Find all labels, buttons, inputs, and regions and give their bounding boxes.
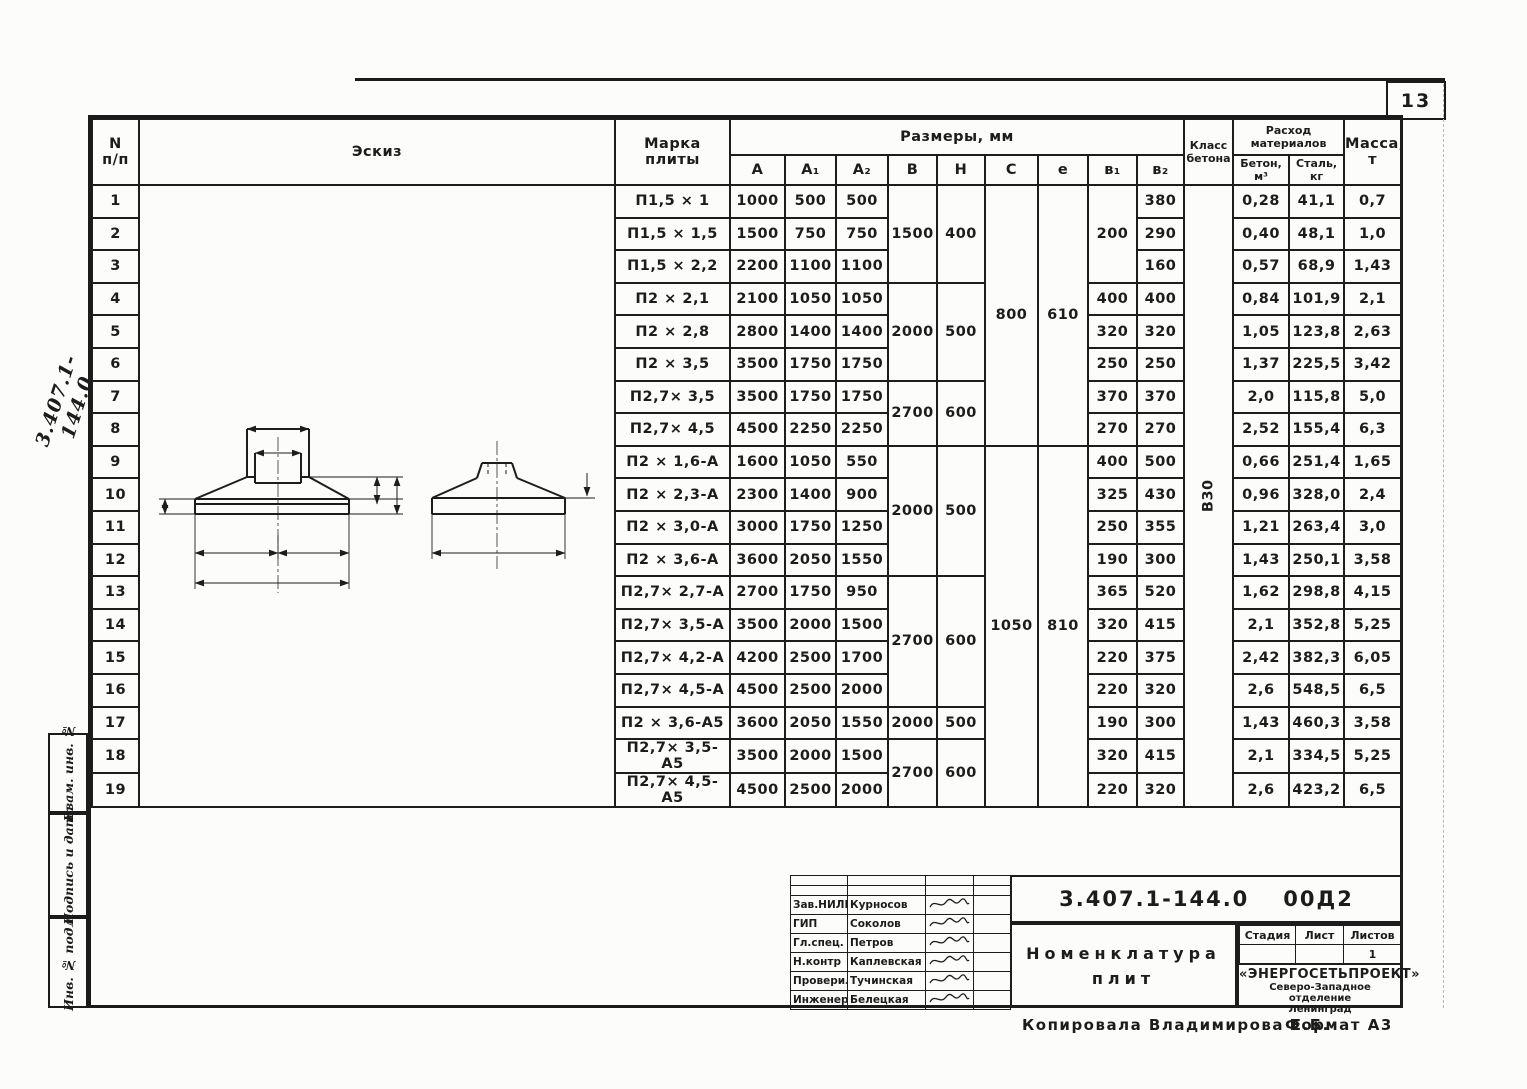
nomenclature-table: N п/п Эскиз Марка плиты Размеры, мм Клас… — [91, 118, 1402, 808]
table-cell: 2250 — [785, 413, 836, 446]
table-cell: 155,4 — [1289, 413, 1344, 446]
table-cell: 2,1 — [1233, 739, 1289, 773]
dimension-lines — [165, 429, 565, 583]
table-cell: 500 — [1137, 446, 1184, 479]
table-cell: 48,1 — [1289, 218, 1344, 251]
listov-header: Листов — [1344, 926, 1402, 945]
table-cell: 600 — [937, 576, 985, 706]
signature-row: ИнженерБелецкая — [791, 991, 1011, 1010]
stage-table: Стадия Лист Листов 1 — [1239, 925, 1402, 964]
signature-table: Зав.НИЛКЭКурносов ГИПСоколов Гл.спец.Пет… — [790, 875, 1011, 1010]
signature-row: ГИПСоколов — [791, 915, 1011, 934]
table-cell: 2500 — [785, 773, 836, 807]
row-number: 5 — [92, 315, 139, 348]
format-note: Формат А3 — [1285, 1016, 1393, 1034]
org-name: «ЭНЕРГОСЕТЬПРОЕКТ» — [1239, 967, 1401, 982]
table-cell: 2000 — [785, 609, 836, 642]
person-role: Проверила — [791, 972, 848, 991]
table-cell: 2,6 — [1233, 773, 1289, 807]
table-cell: 2050 — [785, 707, 836, 740]
col-header-num: N п/п — [92, 119, 139, 185]
list-value — [1296, 945, 1344, 964]
col-header-v2: в₂ — [1137, 155, 1184, 185]
table-cell: 2000 — [836, 773, 888, 807]
table-cell: 1,05 — [1233, 315, 1289, 348]
table-cell: 1000 — [730, 185, 785, 218]
table-cell: 430 — [1137, 478, 1184, 511]
table-cell: 1500 — [730, 218, 785, 251]
table-cell: 423,2 — [1289, 773, 1344, 807]
plate-mark: П2 × 3,6-А5 — [615, 707, 730, 740]
table-cell: 3600 — [730, 544, 785, 577]
table-cell: 6,5 — [1344, 773, 1401, 807]
col-header-steel: Сталь, кг — [1289, 155, 1344, 185]
table-cell: 1500 — [836, 609, 888, 642]
person-signature — [926, 896, 974, 915]
row-number: 11 — [92, 511, 139, 544]
row-number: 12 — [92, 544, 139, 577]
col-header-e: e — [1038, 155, 1088, 185]
col-header-mark: Марка плиты — [615, 119, 730, 185]
table-cell: 1,62 — [1233, 576, 1289, 609]
table-cell: 375 — [1137, 641, 1184, 674]
plate-mark: П2,7× 4,2-А — [615, 641, 730, 674]
person-name: Каплевская — [848, 953, 926, 972]
table-cell: 101,9 — [1289, 283, 1344, 316]
person-name: Белецкая — [848, 991, 926, 1010]
table-cell: 5,0 — [1344, 381, 1401, 414]
table-cell: 4,15 — [1344, 576, 1401, 609]
num-header-line1: N — [93, 136, 138, 152]
doc-title-line2: плит — [1092, 966, 1155, 991]
table-cell: 1400 — [785, 315, 836, 348]
table-cell: 1,0 — [1344, 218, 1401, 251]
table-cell: 1050 — [785, 283, 836, 316]
plate-mark: П2 × 2,1 — [615, 283, 730, 316]
signature-icon — [928, 934, 970, 949]
table-cell: 382,3 — [1289, 641, 1344, 674]
table-cell: 270 — [1137, 413, 1184, 446]
col-header-v1: в₁ — [1088, 155, 1137, 185]
row-number: 9 — [92, 446, 139, 479]
row-number: 16 — [92, 674, 139, 707]
table-cell: 4200 — [730, 641, 785, 674]
doc-suffix: 00Д2 — [1283, 887, 1354, 911]
plate-mark: П2,7× 4,5-А — [615, 674, 730, 707]
table-cell: 520 — [1137, 576, 1184, 609]
row-number: 8 — [92, 413, 139, 446]
table-cell: 2300 — [730, 478, 785, 511]
table-cell: 1550 — [836, 707, 888, 740]
table-cell: 320 — [1137, 315, 1184, 348]
person-role: ГИП — [791, 915, 848, 934]
plate-mark: П2 × 3,5 — [615, 348, 730, 381]
person-name: Соколов — [848, 915, 926, 934]
table-cell: 1,65 — [1344, 446, 1401, 479]
table-cell: 1700 — [836, 641, 888, 674]
table-cell: 2,1 — [1344, 283, 1401, 316]
row-number: 17 — [92, 707, 139, 740]
table-cell: 1750 — [836, 348, 888, 381]
table-cell: 610 — [1038, 185, 1088, 446]
table-cell: 4500 — [730, 674, 785, 707]
table-cell: 2,4 — [1344, 478, 1401, 511]
table-cell: 1,43 — [1344, 250, 1401, 283]
table-cell: 400 — [1088, 283, 1137, 316]
table-cell: 380 — [1137, 185, 1184, 218]
table-cell: 250,1 — [1289, 544, 1344, 577]
table-cell: 550 — [836, 446, 888, 479]
table-cell: 460,3 — [1289, 707, 1344, 740]
table-cell: 3,58 — [1344, 707, 1401, 740]
table-cell: 2050 — [785, 544, 836, 577]
table-cell: 250 — [1088, 511, 1137, 544]
person-name: Петров — [848, 934, 926, 953]
person-role: Инженер — [791, 991, 848, 1010]
plate-mark: П2,7× 3,5-А — [615, 609, 730, 642]
plate-mark: П2 × 1,6-А — [615, 446, 730, 479]
table-cell: 220 — [1088, 674, 1137, 707]
table-cell: 123,8 — [1289, 315, 1344, 348]
table-cell: 400 — [1137, 283, 1184, 316]
row-number: 7 — [92, 381, 139, 414]
table-cell: 2100 — [730, 283, 785, 316]
table-cell: 365 — [1088, 576, 1137, 609]
table-cell: 325 — [1088, 478, 1137, 511]
table-cell: 2000 — [888, 707, 937, 740]
strip-box-inv-podl: Инв. № подл. — [48, 917, 88, 1008]
col-header-A1: A₁ — [785, 155, 836, 185]
plate-mark: П1,5 × 1,5 — [615, 218, 730, 251]
strip-label: Инв. № подл. — [61, 914, 76, 1011]
person-date — [974, 896, 1011, 915]
col-header-C: C — [985, 155, 1038, 185]
table-cell: 810 — [1038, 446, 1088, 807]
num-header-line2: п/п — [93, 152, 138, 168]
row-number: 14 — [92, 609, 139, 642]
table-cell: 2,52 — [1233, 413, 1289, 446]
table-cell: 0,7 — [1344, 185, 1401, 218]
col-header-A: A — [730, 155, 785, 185]
table-cell: 500 — [937, 707, 985, 740]
person-signature — [926, 972, 974, 991]
table-cell: 500 — [785, 185, 836, 218]
doc-number-box: 3.407.1-144.0 00Д2 — [1010, 875, 1403, 923]
plate-mark: П2,7× 4,5-А5 — [615, 773, 730, 807]
table-cell: 370 — [1088, 381, 1137, 414]
person-date — [974, 972, 1011, 991]
table-cell: 950 — [836, 576, 888, 609]
table-cell: 415 — [1137, 739, 1184, 773]
table-cell: 298,8 — [1289, 576, 1344, 609]
right-figure-outline — [432, 463, 565, 514]
table-cell: 2,63 — [1344, 315, 1401, 348]
table-cell: 220 — [1088, 641, 1137, 674]
table-cell: 320 — [1137, 674, 1184, 707]
person-signature — [926, 953, 974, 972]
table-cell: 352,8 — [1289, 609, 1344, 642]
sketch-wrap — [140, 391, 614, 601]
person-role: Н.контр — [791, 953, 848, 972]
signature-row: ПроверилаТучинская — [791, 972, 1011, 991]
person-name: Курносов — [848, 896, 926, 915]
person-role: Гл.спец. — [791, 934, 848, 953]
table-cell: 1750 — [836, 381, 888, 414]
table-cell: 2700 — [888, 381, 937, 446]
person-date — [974, 915, 1011, 934]
table-cell: 6,5 — [1344, 674, 1401, 707]
table-cell: 270 — [1088, 413, 1137, 446]
mark-header-line1: Марка — [616, 136, 729, 152]
signature-row: Зав.НИЛКЭКурносов — [791, 896, 1011, 915]
table-cell: 1750 — [785, 511, 836, 544]
table-cell: 320 — [1088, 609, 1137, 642]
table-cell: 355 — [1137, 511, 1184, 544]
table-cell: 2,42 — [1233, 641, 1289, 674]
table-cell: 3,58 — [1344, 544, 1401, 577]
table-cell: 415 — [1137, 609, 1184, 642]
table-cell: 320 — [1088, 315, 1137, 348]
strip-box-podpis-data: Подпись и дата — [48, 813, 88, 917]
table-cell: 1750 — [785, 576, 836, 609]
listov-value: 1 — [1344, 945, 1402, 964]
table-cell: 1500 — [836, 739, 888, 773]
table-cell: 1,37 — [1233, 348, 1289, 381]
signature-row: Гл.спец.Петров — [791, 934, 1011, 953]
table-cell: 1400 — [836, 315, 888, 348]
stage-header: Стадия — [1240, 926, 1296, 945]
title-block: Зав.НИЛКЭКурносов ГИПСоколов Гл.спец.Пет… — [790, 875, 1403, 1008]
table-cell: 6,3 — [1344, 413, 1401, 446]
table-cell: 3000 — [730, 511, 785, 544]
plate-mark: П2 × 2,3-А — [615, 478, 730, 511]
left-figure-outline — [195, 429, 349, 514]
table-cell: 1750 — [785, 381, 836, 414]
table-cell: 2000 — [888, 283, 937, 381]
col-header-A2: A₂ — [836, 155, 888, 185]
strip-box-vzam-inv: Взам. инв. № — [48, 733, 88, 813]
table-cell: 548,5 — [1289, 674, 1344, 707]
table-cell: 220 — [1088, 773, 1137, 807]
table-cell: 750 — [785, 218, 836, 251]
table-cell: 225,5 — [1289, 348, 1344, 381]
table-cell: 1250 — [836, 511, 888, 544]
signature-icon — [928, 915, 970, 930]
sheet-top-rule — [355, 78, 1445, 81]
person-date — [974, 991, 1011, 1010]
table-cell: 160 — [1137, 250, 1184, 283]
table-cell: 800 — [985, 185, 1038, 446]
sketch-cell — [139, 185, 615, 807]
organization-box: «ЭНЕРГОСЕТЬПРОЕКТ» Северо-Западное отдел… — [1239, 964, 1401, 1015]
table-cell: 328,0 — [1289, 478, 1344, 511]
person-name: Тучинская — [848, 972, 926, 991]
plate-mark: П2,7× 3,5 — [615, 381, 730, 414]
table-cell: 2700 — [888, 739, 937, 807]
table-cell: 190 — [1088, 544, 1137, 577]
table-cell: 250 — [1137, 348, 1184, 381]
stage-box: Стадия Лист Листов 1 «ЭНЕРГОСЕТЬПРОЕКТ» … — [1237, 923, 1403, 1008]
table-cell: 300 — [1137, 707, 1184, 740]
col-header-sketch: Эскиз — [139, 119, 615, 185]
table-cell: 115,8 — [1289, 381, 1344, 414]
strip-label: Подпись и дата — [61, 806, 76, 925]
plate-mark: П2 × 3,0-А — [615, 511, 730, 544]
table-cell: 2000 — [888, 446, 937, 576]
table-cell: 2,0 — [1233, 381, 1289, 414]
table-cell: 41,1 — [1289, 185, 1344, 218]
table-cell: 500 — [836, 185, 888, 218]
table-cell: 1,43 — [1233, 544, 1289, 577]
col-header-mass: Масса, т — [1344, 119, 1401, 185]
row-number: 13 — [92, 576, 139, 609]
person-signature — [926, 991, 974, 1010]
table-cell: 200 — [1088, 185, 1137, 283]
doc-title-line1: Номенклатура — [1026, 941, 1221, 966]
table-cell: 290 — [1137, 218, 1184, 251]
table-cell: 2000 — [785, 739, 836, 773]
table-cell: 190 — [1088, 707, 1137, 740]
table-cell: 5,25 — [1344, 739, 1401, 773]
table-cell: 2700 — [730, 576, 785, 609]
row-number: 10 — [92, 478, 139, 511]
table-cell: 2250 — [836, 413, 888, 446]
table-cell: 3500 — [730, 348, 785, 381]
col-header-B: B — [888, 155, 937, 185]
table-cell: 320 — [1088, 739, 1137, 773]
table-cell: 750 — [836, 218, 888, 251]
col-header-concrete: Бетон, м³ — [1233, 155, 1289, 185]
signature-row: Н.контрКаплевская — [791, 953, 1011, 972]
page-number: 13 — [1401, 90, 1431, 112]
document-canvas: 13 3.407.1-144.0 Взам. инв. № Подпись и … — [0, 0, 1527, 1089]
table-cell: 5,25 — [1344, 609, 1401, 642]
row-number: 2 — [92, 218, 139, 251]
row-number: 3 — [92, 250, 139, 283]
table-cell: 0,28 — [1233, 185, 1289, 218]
table-cell: 1100 — [836, 250, 888, 283]
table-cell: 3500 — [730, 381, 785, 414]
signature-icon — [928, 972, 970, 987]
plate-mark: П2,7× 2,7-А — [615, 576, 730, 609]
table-cell: 900 — [836, 478, 888, 511]
table-cell: 0,57 — [1233, 250, 1289, 283]
table-cell: 68,9 — [1289, 250, 1344, 283]
table-cell: 250 — [1088, 348, 1137, 381]
signature-icon — [928, 991, 970, 1006]
table-cell: 1,21 — [1233, 511, 1289, 544]
table-cell: 1400 — [785, 478, 836, 511]
table-cell: 3,42 — [1344, 348, 1401, 381]
table-cell: 1050 — [785, 446, 836, 479]
table-cell: 334,5 — [1289, 739, 1344, 773]
table-cell: 1050 — [836, 283, 888, 316]
copied-by-note: Копировала Владимирова Е.Б. — [1022, 1016, 1330, 1034]
table-cell: 1750 — [785, 348, 836, 381]
stage-value — [1240, 945, 1296, 964]
table-row: 1 — [92, 185, 1401, 218]
table-cell: 500 — [937, 446, 985, 576]
person-date — [974, 934, 1011, 953]
row-number: 19 — [92, 773, 139, 807]
table-cell: 6,05 — [1344, 641, 1401, 674]
table-cell: 2500 — [785, 641, 836, 674]
table-cell: 2,6 — [1233, 674, 1289, 707]
table-cell: 0,40 — [1233, 218, 1289, 251]
plate-mark: П1,5 × 1 — [615, 185, 730, 218]
table-cell: 3600 — [730, 707, 785, 740]
table-cell: 3,0 — [1344, 511, 1401, 544]
org-branch: Северо-Западное отделение — [1239, 982, 1401, 1004]
person-role: Зав.НИЛКЭ — [791, 896, 848, 915]
table-cell: 0,66 — [1233, 446, 1289, 479]
table-cell: 263,4 — [1289, 511, 1344, 544]
table-cell: 1,43 — [1233, 707, 1289, 740]
col-header-H: H — [937, 155, 985, 185]
table-cell: 1550 — [836, 544, 888, 577]
table-cell: В30 — [1184, 185, 1233, 807]
table-cell: 4500 — [730, 413, 785, 446]
table-cell: 3500 — [730, 609, 785, 642]
person-signature — [926, 934, 974, 953]
table-cell: 1600 — [730, 446, 785, 479]
plate-mark: П2 × 2,8 — [615, 315, 730, 348]
table-cell: 0,84 — [1233, 283, 1289, 316]
person-date — [974, 953, 1011, 972]
signature-icon — [928, 953, 970, 968]
list-header: Лист — [1296, 926, 1344, 945]
person-signature — [926, 915, 974, 934]
table-cell: 2200 — [730, 250, 785, 283]
signature-icon — [928, 896, 970, 911]
row-number: 1 — [92, 185, 139, 218]
plate-mark: П2,7× 4,5 — [615, 413, 730, 446]
table-cell: 500 — [937, 283, 985, 381]
table-cell: 370 — [1137, 381, 1184, 414]
table-cell: 2700 — [888, 576, 937, 706]
table-cell: 2,1 — [1233, 609, 1289, 642]
plate-mark: П1,5 × 2,2 — [615, 250, 730, 283]
table-cell: 400 — [1088, 446, 1137, 479]
plate-mark: П2 × 3,6-А — [615, 544, 730, 577]
table-cell: 1100 — [785, 250, 836, 283]
table-cell: 400 — [937, 185, 985, 283]
table-cell: 3500 — [730, 739, 785, 773]
table-cell: 320 — [1137, 773, 1184, 807]
table-cell: 2500 — [785, 674, 836, 707]
col-header-concrete-class: Класс бетона — [1184, 119, 1233, 185]
table-cell: 2000 — [836, 674, 888, 707]
table-cell: 600 — [937, 381, 985, 446]
table-cell: 600 — [937, 739, 985, 807]
col-header-sizes: Размеры, мм — [730, 119, 1184, 155]
plate-mark: П2,7× 3,5-А5 — [615, 739, 730, 773]
org-city: Ленинград — [1239, 1004, 1401, 1015]
slab-section-sketch — [147, 391, 607, 601]
table-cell: 0,96 — [1233, 478, 1289, 511]
sheet-edge-dashed-line — [1443, 84, 1444, 1008]
table-cell: 251,4 — [1289, 446, 1344, 479]
col-header-materials: Расход материалов — [1233, 119, 1344, 155]
table-cell: 300 — [1137, 544, 1184, 577]
table-cell: 2800 — [730, 315, 785, 348]
row-number: 4 — [92, 283, 139, 316]
table-cell: 1500 — [888, 185, 937, 283]
table-cell: 4500 — [730, 773, 785, 807]
row-number: 18 — [92, 739, 139, 773]
doc-title-box: Номенклатура плит — [1010, 923, 1237, 1008]
row-number: 15 — [92, 641, 139, 674]
